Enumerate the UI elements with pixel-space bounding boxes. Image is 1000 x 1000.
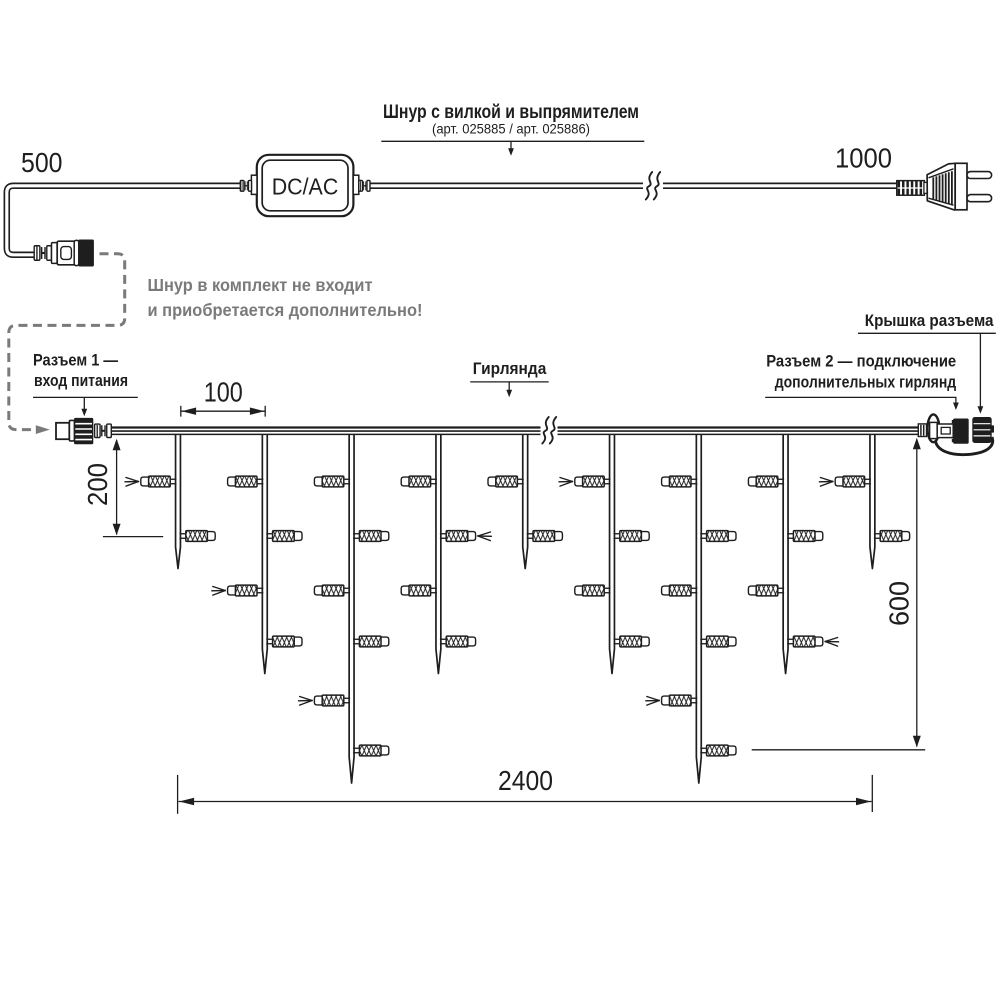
- svg-text:вход питания: вход питания: [34, 371, 128, 390]
- svg-text:Гирлянда: Гирлянда: [473, 359, 547, 378]
- svg-text:DC/AC: DC/AC: [272, 173, 339, 199]
- svg-text:дополнительных гирлянд: дополнительных гирлянд: [775, 373, 957, 392]
- svg-text:и приобретается дополнительно!: и приобретается дополнительно!: [148, 300, 423, 320]
- svg-text:Шнур в комплект не входит: Шнур в комплект не входит: [148, 275, 373, 295]
- svg-text:1000: 1000: [835, 143, 892, 174]
- svg-text:500: 500: [21, 147, 63, 178]
- svg-text:Шнур с вилкой и выпрямителем: Шнур с вилкой и выпрямителем: [383, 101, 639, 123]
- svg-text:(арт. 025885 / арт. 025886): (арт. 025885 / арт. 025886): [432, 122, 590, 137]
- svg-text:200: 200: [82, 463, 113, 506]
- svg-text:600: 600: [884, 581, 915, 626]
- svg-text:Разъем 1 —: Разъем 1 —: [33, 351, 118, 370]
- svg-text:Крышка разъема: Крышка разъема: [865, 311, 994, 330]
- svg-text:2400: 2400: [498, 765, 553, 796]
- svg-text:100: 100: [204, 377, 243, 408]
- svg-text:Разъем 2 — подключение: Разъем 2 — подключение: [766, 351, 956, 370]
